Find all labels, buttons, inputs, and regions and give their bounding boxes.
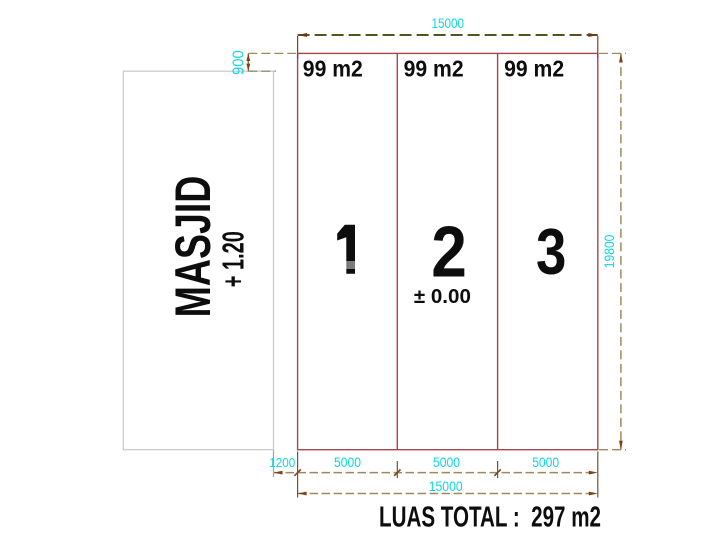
svg-text:19800: 19800 — [601, 234, 617, 268]
svg-text:± 0.00: ± 0.00 — [414, 285, 471, 308]
svg-text:5000: 5000 — [532, 454, 559, 470]
svg-text:2: 2 — [431, 212, 467, 292]
svg-text:5000: 5000 — [334, 454, 361, 470]
svg-text:5000: 5000 — [433, 454, 460, 470]
svg-text:99 m2: 99 m2 — [404, 56, 464, 82]
svg-text:MASJID: MASJID — [165, 176, 221, 318]
svg-text:15000: 15000 — [432, 15, 465, 31]
svg-text:3: 3 — [536, 216, 566, 289]
svg-text:99 m2: 99 m2 — [303, 56, 363, 82]
svg-text:900: 900 — [231, 50, 248, 75]
svg-text:LUAS TOTAL : 297 m2: LUAS TOTAL : 297 m2 — [379, 502, 601, 534]
svg-text:1200: 1200 — [269, 455, 295, 470]
svg-text:+ 1.20: + 1.20 — [217, 231, 251, 287]
svg-text:99 m2: 99 m2 — [504, 56, 564, 82]
svg-text:15000: 15000 — [429, 479, 463, 494]
